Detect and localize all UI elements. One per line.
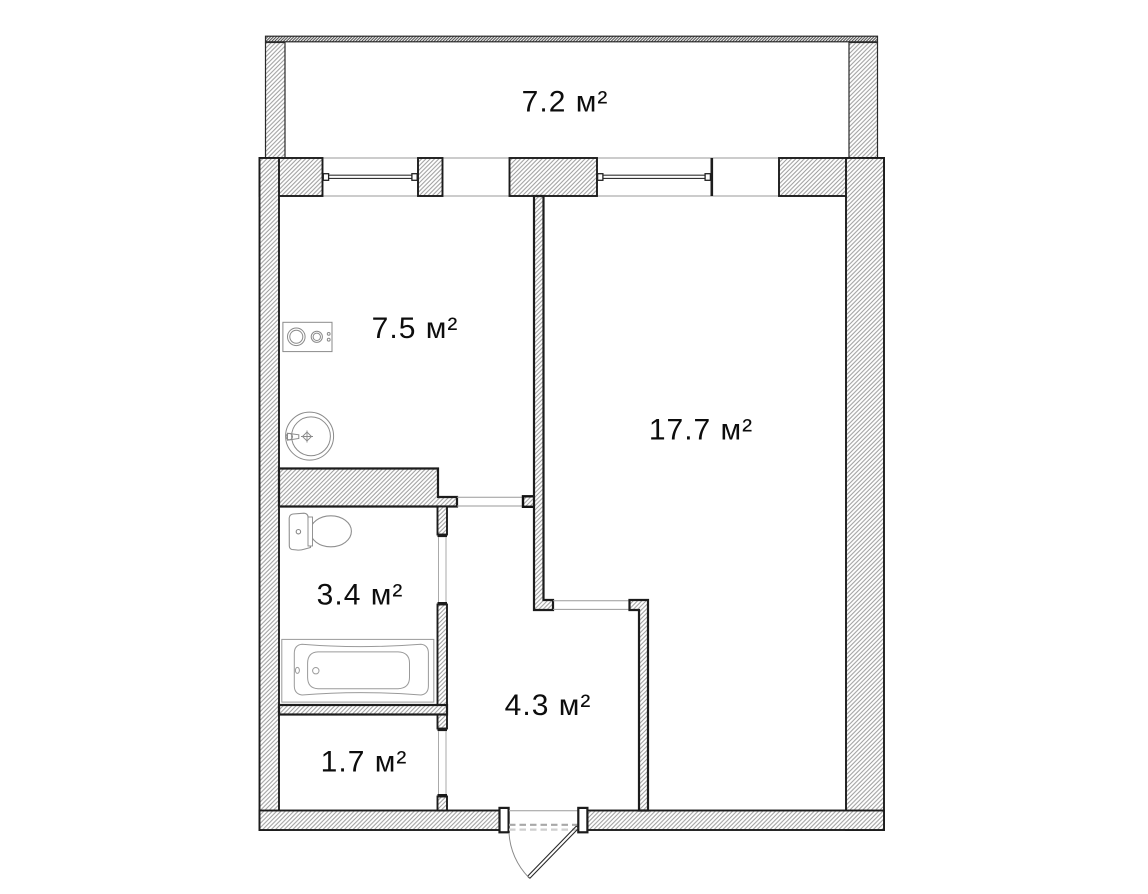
svg-text:3.4 м²: 3.4 м² — [317, 579, 404, 612]
svg-text:1.7 м²: 1.7 м² — [321, 746, 408, 779]
svg-text:4.3 м²: 4.3 м² — [505, 689, 592, 722]
svg-text:7.2 м²: 7.2 м² — [522, 86, 609, 119]
svg-text:17.7 м²: 17.7 м² — [649, 414, 753, 447]
svg-text:7.5 м²: 7.5 м² — [372, 312, 459, 345]
